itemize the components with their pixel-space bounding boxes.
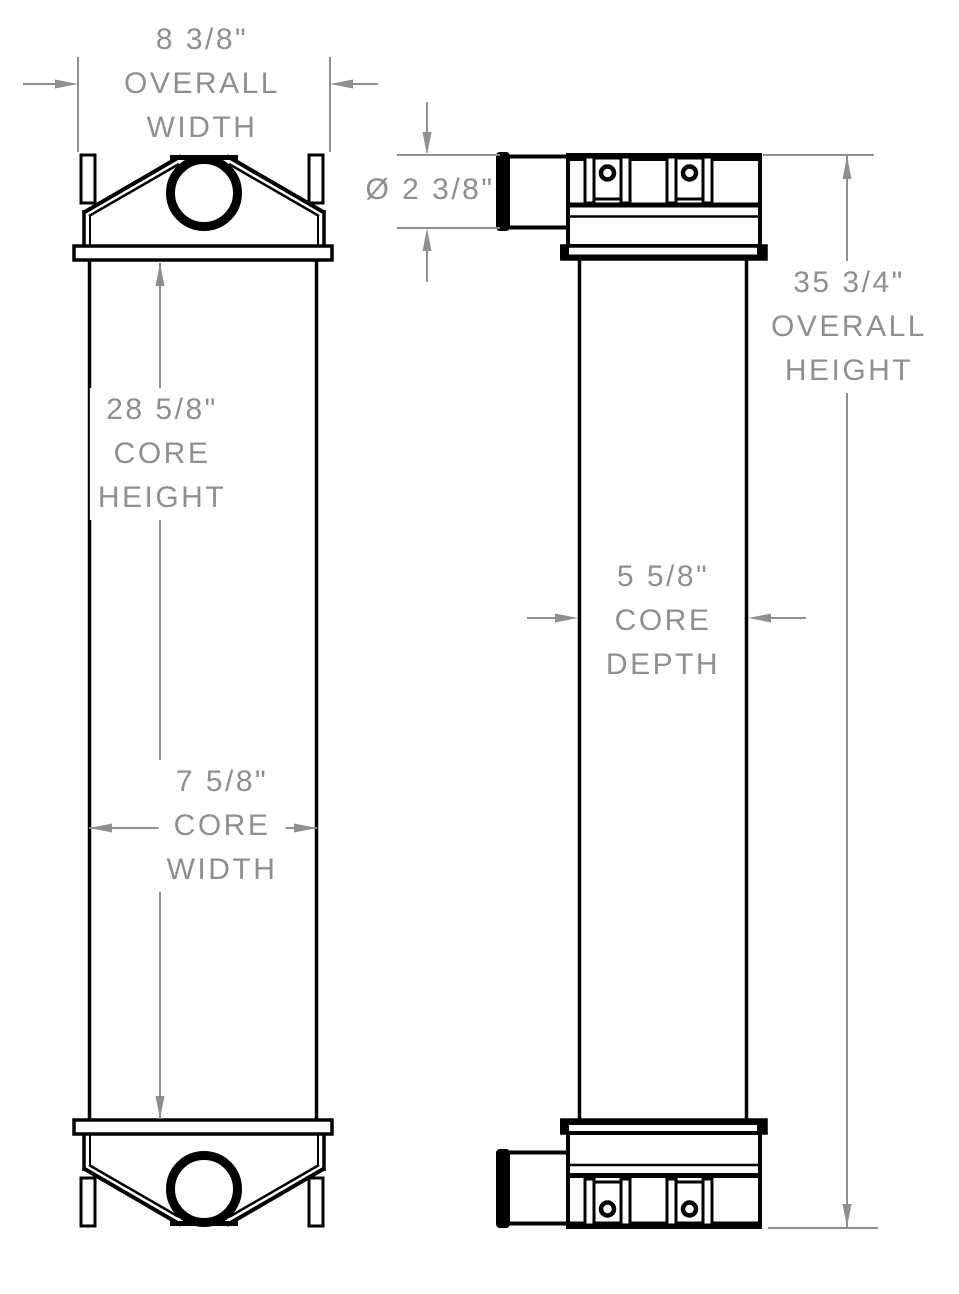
front-top-tank-slope-right-inner <box>229 164 319 216</box>
dim-port-diameter-label: Ø 2 3/8" <box>365 168 494 212</box>
arrowhead <box>748 614 771 623</box>
side-view <box>496 152 766 1228</box>
front-bottom-bracket-right <box>309 1178 323 1226</box>
arrowhead <box>843 1204 852 1227</box>
dim-text: WIDTH <box>167 848 278 892</box>
dim-value: 7 5/8" <box>167 760 278 804</box>
dim-text: HEIGHT <box>771 349 927 393</box>
arrowhead <box>423 132 432 155</box>
side-top-bracket-bar <box>667 157 676 203</box>
dim-text: WIDTH <box>124 106 280 150</box>
arrowhead <box>843 156 852 179</box>
side-top-pipe-cap <box>496 152 510 231</box>
side-top-flange-tab-right <box>757 245 766 260</box>
side-bottom-bolt-hole <box>683 1203 696 1216</box>
front-top-tank-slope-left-inner <box>89 164 179 216</box>
dim-text: DEPTH <box>606 643 720 687</box>
front-bottom-tank-slope-right-inner <box>229 1165 319 1217</box>
side-top-bracket-bar <box>621 157 630 203</box>
arrowhead <box>89 824 112 833</box>
side-top-flange-tab-left <box>560 245 569 260</box>
side-bottom-bracket-bar <box>703 1179 712 1225</box>
side-core <box>580 259 747 1120</box>
front-bottom-tank-slope-left-inner <box>89 1165 179 1217</box>
side-top-bolt-hole <box>601 167 614 180</box>
dim-overall-height-label: 35 3/4" OVERALL HEIGHT <box>763 261 935 393</box>
side-bottom-tank <box>496 1119 766 1228</box>
arrowhead <box>55 80 78 89</box>
dim-text: CORE <box>167 804 278 848</box>
technical-drawing-canvas: 8 3/8" OVERALL WIDTH Ø 2 3/8" 35 3/4" OV… <box>0 0 959 1294</box>
arrowhead <box>330 80 353 89</box>
dim-text: HEIGHT <box>98 476 226 520</box>
side-top-bracket-bar <box>703 157 712 203</box>
front-top-port-circle <box>171 160 238 227</box>
arrowhead <box>156 263 165 286</box>
dim-text: OVERALL <box>124 62 280 106</box>
arrowhead <box>423 228 432 251</box>
side-bottom-bolt-hole <box>601 1203 614 1216</box>
front-top-bracket-left <box>81 155 95 203</box>
side-top-bolt-hole <box>683 167 696 180</box>
side-top-bracket-bar <box>585 157 594 203</box>
front-bottom-port-circle <box>171 1156 238 1223</box>
arrowhead <box>156 1096 165 1119</box>
side-bottom-bracket-bar <box>585 1179 594 1225</box>
front-top-tank-slope-left-outer <box>83 156 181 213</box>
dim-core-width-label: 7 5/8" CORE WIDTH <box>159 760 286 892</box>
dim-text: CORE <box>606 599 720 643</box>
dim-value: 28 5/8" <box>98 388 226 432</box>
dim-overall-width-label: 8 3/8" OVERALL WIDTH <box>124 18 280 150</box>
dim-core-depth-label: 5 5/8" CORE DEPTH <box>606 555 720 687</box>
side-bottom-pipe-cap <box>496 1149 510 1228</box>
side-top-tank <box>496 152 766 260</box>
dim-value: 5 5/8" <box>606 555 720 599</box>
front-view <box>74 155 332 1226</box>
arrowhead <box>294 824 317 833</box>
dim-value: 35 3/4" <box>771 261 927 305</box>
arrowhead <box>555 614 578 623</box>
front-bottom-bracket-left <box>81 1178 95 1226</box>
dim-text: CORE <box>98 432 226 476</box>
front-bottom-tank <box>74 1120 332 1226</box>
dim-value: Ø 2 3/8" <box>365 168 494 212</box>
side-bottom-bracket-bar <box>621 1179 630 1225</box>
front-top-bracket-right <box>309 155 323 203</box>
front-bottom-tank-slope-left-outer <box>83 1168 181 1225</box>
dim-value: 8 3/8" <box>124 18 280 62</box>
side-bottom-bracket-bar <box>667 1179 676 1225</box>
front-top-tank <box>74 155 332 260</box>
dim-text: OVERALL <box>771 305 927 349</box>
front-top-flange <box>74 246 332 260</box>
front-bottom-flange <box>74 1120 332 1134</box>
dim-core-height-label: 28 5/8" CORE HEIGHT <box>90 388 234 520</box>
